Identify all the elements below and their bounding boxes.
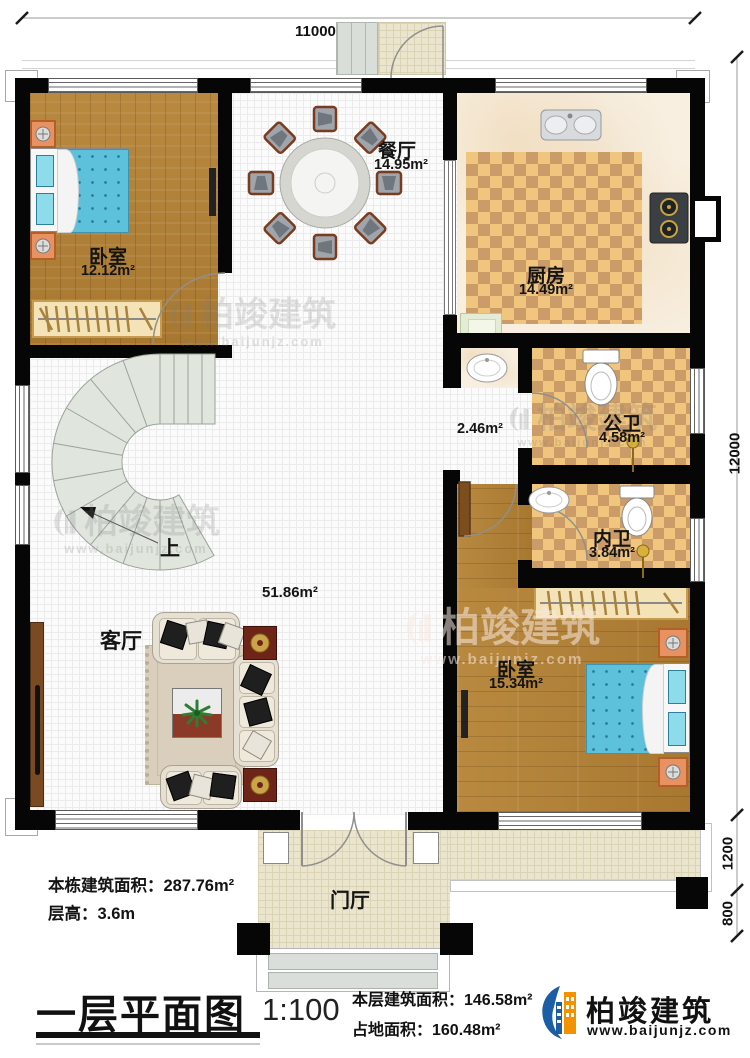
room-area-living: 51.86m² [262, 584, 318, 601]
watermark: 柏竣建筑 www.baijunjz.com [52, 505, 220, 556]
watermark-text: 柏竣建筑 [200, 298, 336, 332]
note-floor-height: 层高：3.6m [48, 900, 135, 924]
porch-floor [450, 823, 707, 880]
watermark-url: www.baijunjz.com [168, 336, 336, 349]
top-steps [336, 22, 378, 75]
kitchen-checker-rug [466, 152, 642, 324]
dim-height: 12000 [727, 424, 744, 484]
title-underline-thin [36, 1043, 260, 1045]
room-area-kitchen: 14.49m² [498, 282, 594, 298]
window [55, 810, 198, 830]
vanity-floor [457, 348, 518, 388]
stairs-up-label: 上 [160, 532, 180, 561]
sofa [233, 655, 279, 767]
plan-scale: 1:100 [262, 992, 340, 1028]
wall [457, 333, 690, 348]
window [690, 518, 705, 582]
window [250, 78, 362, 93]
wall [518, 568, 690, 588]
room-area-bedroom-bottom: 15.34m² [468, 676, 564, 692]
nightstand [30, 232, 56, 260]
note-total-area: 本栋建筑面积：287.76m² [48, 872, 234, 896]
wall [408, 812, 443, 830]
porch-column [440, 923, 473, 955]
wall [443, 348, 461, 388]
dim-steps: 800 [720, 884, 737, 944]
coffee-table [172, 688, 222, 738]
wall [443, 93, 457, 160]
window [15, 485, 30, 545]
pillar-outline [413, 832, 439, 864]
watermark-url: www.baijunjz.com [52, 543, 220, 556]
bed [30, 148, 128, 232]
room-area-corridor: 2.46m² [430, 421, 530, 437]
end-table [243, 768, 277, 802]
title-underline [36, 1032, 260, 1038]
wall [443, 315, 457, 348]
porch-column [676, 877, 708, 909]
brand-website: www.baijunjz.com [587, 1022, 732, 1038]
nightstand [658, 757, 688, 787]
tv [461, 690, 468, 738]
porch-edge [450, 880, 712, 892]
room-area-bedroom-top: 12.12m² [60, 263, 156, 279]
wall [518, 348, 532, 393]
pillar-outline [263, 832, 289, 864]
window [48, 78, 198, 93]
end-table [243, 626, 277, 660]
wardrobe [32, 300, 162, 338]
window [498, 812, 642, 830]
bed [585, 663, 690, 753]
ground-area-note: 占地面积：160.48m² [352, 1016, 501, 1040]
brand-logo [538, 980, 582, 1049]
dim-porch: 1200 [720, 824, 737, 884]
wall [443, 470, 460, 484]
watermark-logo-icon [168, 298, 194, 332]
nightstand [30, 120, 56, 148]
dim-width: 11000 [295, 23, 336, 40]
chimney [695, 196, 721, 242]
wall [518, 465, 690, 484]
room-area-bath-public: 4.58m² [574, 430, 670, 446]
watermark-text: 柏竣建筑 [440, 608, 600, 648]
floor-plan: 11000 12000 1200 800 卧室 12.12m² 餐厅 14.95… [0, 0, 750, 1058]
top-porch [378, 22, 446, 75]
watermark: 柏竣建筑 www.baijunjz.com [168, 298, 336, 349]
window [495, 78, 647, 93]
room-area-dining: 14.95m² [374, 157, 428, 173]
room-label-living: 客厅 [100, 625, 142, 655]
sliding-door [444, 160, 456, 315]
sofa [152, 612, 240, 664]
room-label-foyer: 门厅 [302, 884, 398, 913]
brand-logo-icon [538, 980, 582, 1044]
watermark-logo-icon [404, 608, 434, 648]
window [15, 385, 30, 473]
entry-step [268, 953, 438, 970]
watermark-text: 柏竣建筑 [84, 505, 220, 539]
wall [218, 93, 232, 273]
porch-column [237, 923, 270, 955]
sofa [160, 765, 242, 809]
floor-area-note: 本层建筑面积：146.58m² [352, 986, 533, 1010]
tv [209, 168, 216, 216]
watermark-logo-icon [52, 505, 78, 539]
wall [690, 78, 705, 830]
room-area-bath-private: 3.84m² [564, 545, 660, 561]
tv-cabinet [30, 622, 44, 807]
nightstand [658, 628, 688, 658]
wall [518, 484, 532, 505]
wall [518, 560, 532, 568]
window [690, 368, 705, 434]
